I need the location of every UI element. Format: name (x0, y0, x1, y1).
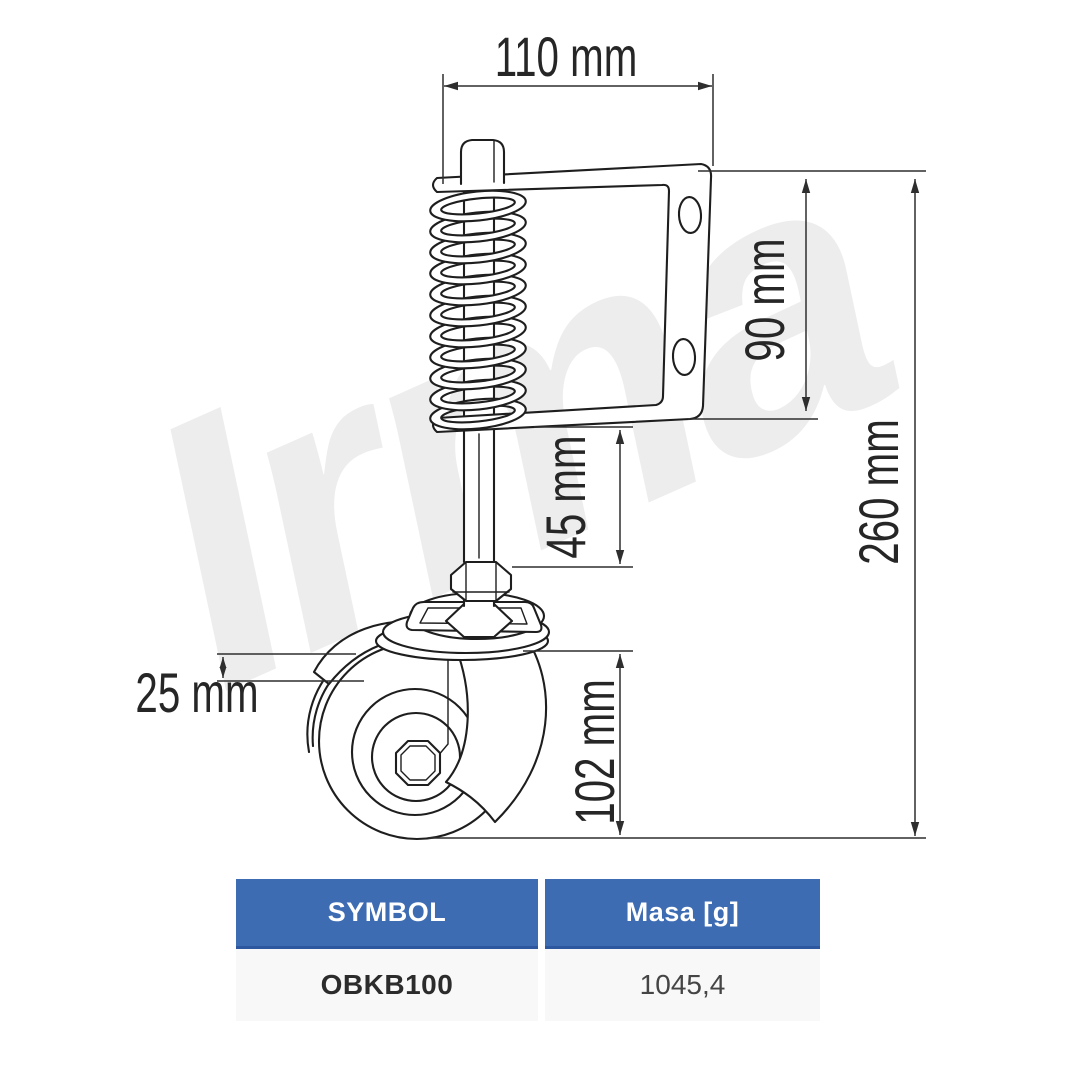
dim-label-45: 45 mm (536, 435, 598, 558)
swivel-head (376, 593, 549, 660)
dim-label-260: 260 mm (849, 419, 911, 565)
dim-label-110: 110 mm (495, 27, 638, 89)
dim-label-90: 90 mm (735, 238, 797, 361)
spec-value-mass: 1045,4 (545, 949, 820, 1021)
dimension-bracket-90: 90 mm (688, 171, 926, 419)
spec-header-mass: Masa [g] (545, 879, 820, 949)
caster-assembly (307, 140, 711, 839)
bolt-head (461, 140, 504, 184)
dim-label-25: 25 mm (135, 663, 258, 725)
dim-label-102: 102 mm (565, 679, 627, 825)
bracket-hole-lower (672, 338, 696, 375)
axle-boss (396, 741, 440, 785)
spec-table: SYMBOL Masa [g] OBKB100 1045,4 (236, 879, 820, 1021)
spec-table-data-row: OBKB100 1045,4 (236, 949, 820, 1021)
spec-value-symbol: OBKB100 (236, 949, 538, 1021)
product-dimension-sheet: Irma (0, 0, 1080, 1080)
bracket-hole-upper (678, 196, 702, 233)
dimension-stem-45: 45 mm (512, 427, 633, 567)
spec-table-header-row: SYMBOL Masa [g] (236, 879, 820, 949)
spec-header-symbol: SYMBOL (236, 879, 538, 949)
stem-nut (451, 562, 511, 601)
